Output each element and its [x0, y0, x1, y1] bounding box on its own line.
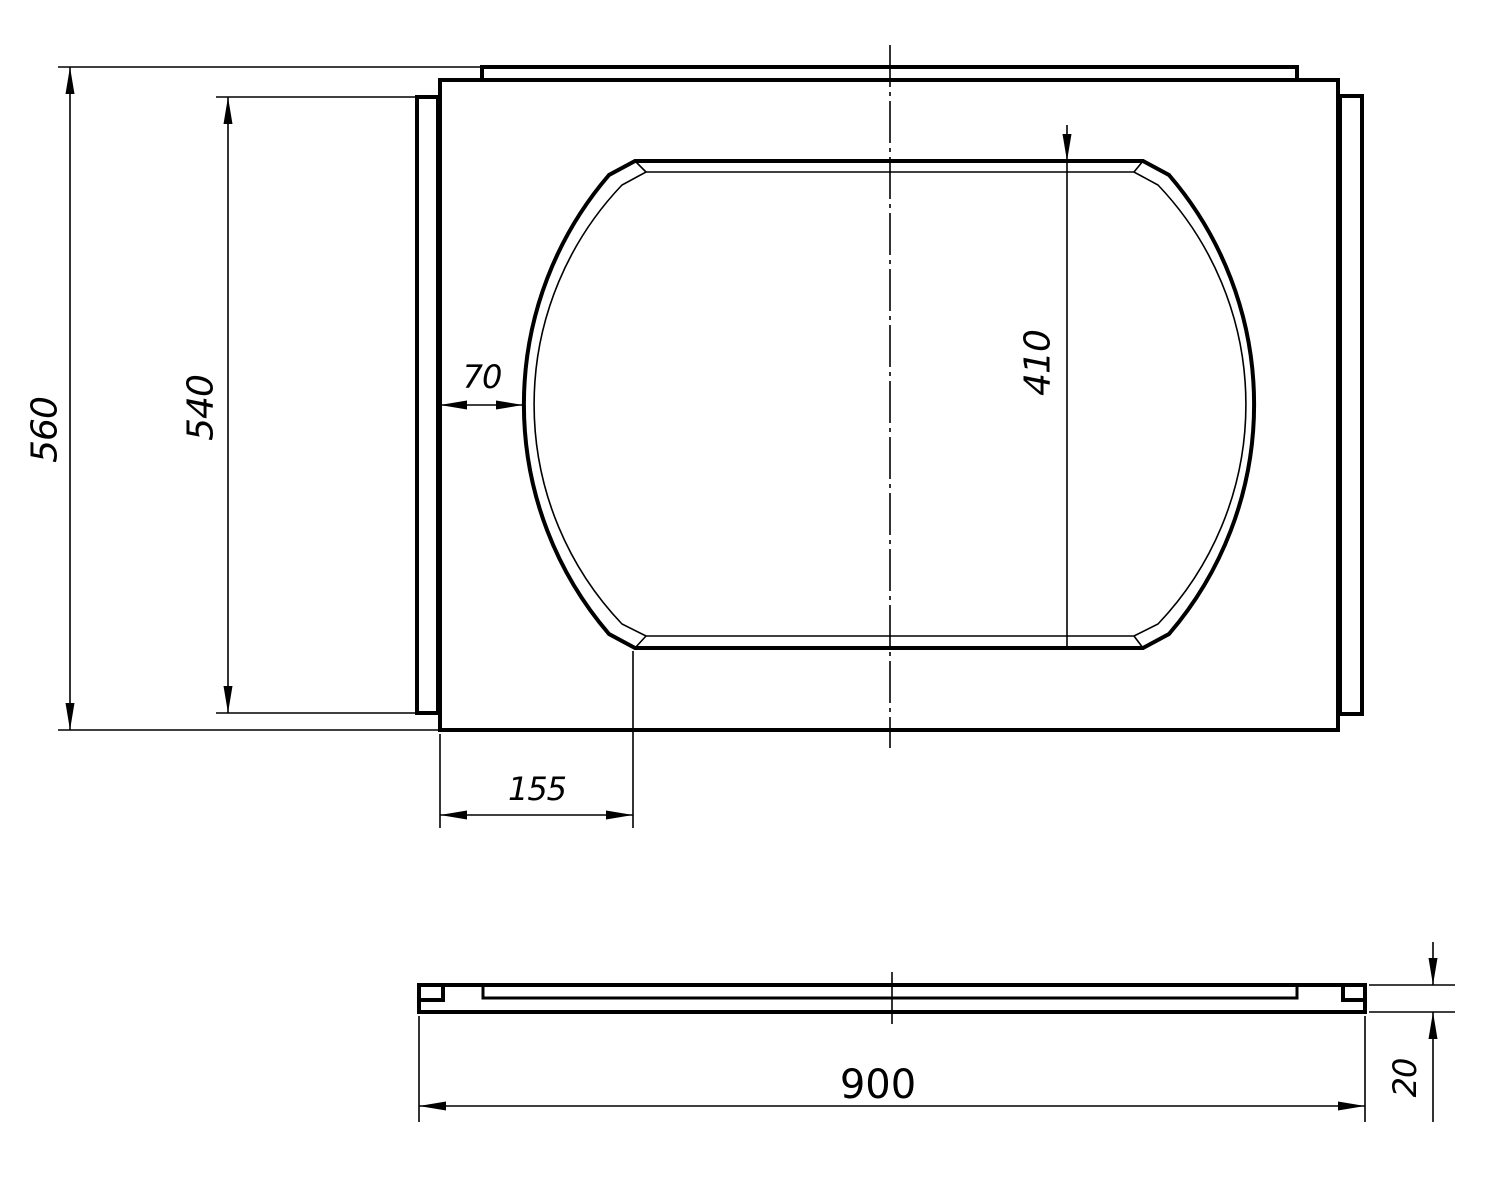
dim-540-arrow-top — [224, 97, 233, 124]
dim-70-label: 70 — [463, 358, 502, 396]
dim-900-arrow-right — [1338, 1102, 1365, 1111]
right-side-strip — [1340, 96, 1362, 714]
dim-900-arrow-left — [419, 1102, 446, 1111]
dim-20-label: 20 — [1386, 1059, 1424, 1098]
dim-560-label: 560 — [25, 397, 66, 463]
dim-155: 155 — [440, 651, 633, 828]
dim-20: 20 — [1369, 942, 1455, 1122]
top-view — [417, 45, 1362, 748]
dim-540: 540 — [181, 97, 417, 713]
dim-20-arrow-top — [1429, 958, 1438, 985]
dim-70: 70 — [440, 358, 523, 410]
dim-560: 560 — [25, 67, 482, 730]
technical-drawing-canvas: 560 540 70 410 155 900 — [0, 0, 1491, 1179]
left-side-strip — [417, 97, 438, 713]
dim-70-arrow-left — [440, 401, 467, 410]
dim-410-arrow — [1063, 134, 1072, 161]
dim-900: 900 — [419, 1016, 1365, 1122]
side-view — [419, 972, 1365, 1024]
dim-560-arrow-bottom — [66, 703, 75, 730]
dim-900-label: 900 — [840, 1062, 916, 1108]
dim-410-label: 410 — [1018, 330, 1059, 396]
dim-155-arrow-left — [440, 811, 467, 820]
side-view-right-cap — [1343, 985, 1365, 1000]
dim-20-arrow-bottom — [1429, 1012, 1438, 1039]
drawing-svg: 560 540 70 410 155 900 — [0, 0, 1491, 1179]
dim-540-label: 540 — [181, 375, 222, 441]
cutout-outer-edge — [524, 161, 1254, 648]
dim-560-arrow-top — [66, 67, 75, 94]
dim-540-arrow-bottom — [224, 686, 233, 713]
dim-155-arrow-right — [606, 811, 633, 820]
panel-outline — [440, 80, 1338, 730]
dim-410: 410 — [1018, 125, 1072, 648]
dim-70-arrow-right — [496, 401, 523, 410]
dim-155-label: 155 — [508, 770, 566, 808]
side-view-left-cap — [419, 985, 443, 1000]
